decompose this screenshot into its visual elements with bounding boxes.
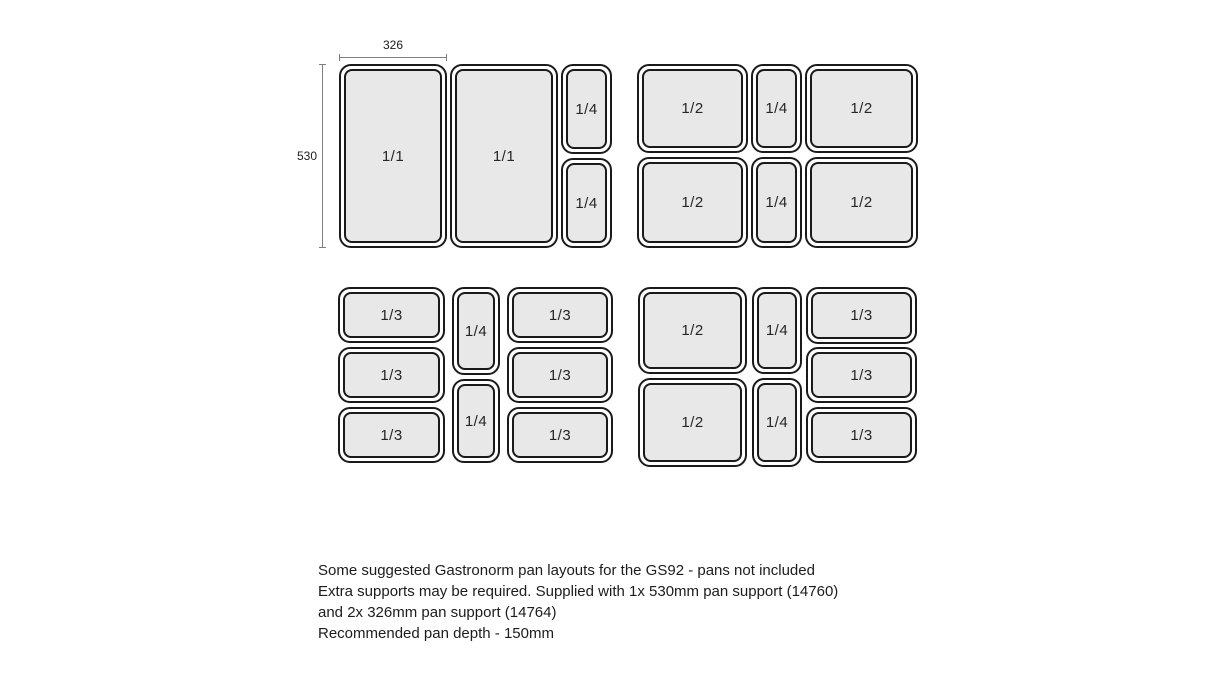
pan-body: 1/4 xyxy=(566,69,607,149)
gastronorm-pan-1-3: 1/3 xyxy=(806,287,917,344)
gastronorm-pan-1-3: 1/3 xyxy=(806,347,917,403)
pan-size-label: 1/3 xyxy=(549,427,571,444)
pan-body: 1/2 xyxy=(642,162,743,243)
gastronorm-pan-1-3: 1/3 xyxy=(507,347,613,403)
pan-size-label: 1/1 xyxy=(382,148,404,165)
pan-body: 1/3 xyxy=(811,292,912,339)
caption: Some suggested Gastronorm pan layouts fo… xyxy=(318,560,838,644)
pan-size-label: 1/3 xyxy=(850,307,872,324)
pan-size-label: 1/3 xyxy=(850,427,872,444)
gastronorm-pan-1-4: 1/4 xyxy=(751,157,802,248)
pan-body: 1/2 xyxy=(643,292,742,369)
caption-line-4: Recommended pan depth - 150mm xyxy=(318,623,838,644)
dimension-width-label: 326 xyxy=(339,38,447,52)
caption-line-3: and 2x 326mm pan support (14764) xyxy=(318,602,838,623)
pan-size-label: 1/2 xyxy=(850,100,872,117)
pan-size-label: 1/4 xyxy=(766,414,788,431)
gastronorm-pan-1-4: 1/4 xyxy=(751,64,802,153)
pan-body: 1/4 xyxy=(757,292,797,369)
pan-size-label: 1/4 xyxy=(575,195,597,212)
pan-body: 1/4 xyxy=(457,384,495,458)
pan-body: 1/3 xyxy=(512,292,608,338)
pan-body: 1/3 xyxy=(512,352,608,398)
gastronorm-pan-1-4: 1/4 xyxy=(452,287,500,375)
pan-size-label: 1/4 xyxy=(575,101,597,118)
pan-size-label: 1/4 xyxy=(765,100,787,117)
gastronorm-pan-1-1: 1/1 xyxy=(339,64,447,248)
pan-size-label: 1/3 xyxy=(549,307,571,324)
pan-size-label: 1/3 xyxy=(380,307,402,324)
pan-body: 1/4 xyxy=(756,69,797,148)
gastronorm-pan-1-3: 1/3 xyxy=(507,287,613,343)
pan-body: 1/2 xyxy=(643,383,742,462)
gastronorm-pan-1-3: 1/3 xyxy=(806,407,917,463)
pan-size-label: 1/3 xyxy=(380,367,402,384)
pan-body: 1/3 xyxy=(811,412,912,458)
pan-size-label: 1/4 xyxy=(766,322,788,339)
gastronorm-pan-1-4: 1/4 xyxy=(752,287,802,374)
pan-size-label: 1/3 xyxy=(850,367,872,384)
gastronorm-pan-1-1: 1/1 xyxy=(450,64,558,248)
pan-size-label: 1/2 xyxy=(850,194,872,211)
page: 326 530 1/11/11/41/41/21/41/21/21/41/21/… xyxy=(0,0,1214,683)
gastronorm-pan-1-3: 1/3 xyxy=(338,347,445,403)
pan-body: 1/2 xyxy=(810,69,913,148)
pan-size-label: 1/4 xyxy=(465,323,487,340)
gastronorm-pan-1-2: 1/2 xyxy=(638,378,747,467)
dimension-width-line xyxy=(339,57,447,58)
pan-size-label: 1/1 xyxy=(493,148,515,165)
gastronorm-pan-1-3: 1/3 xyxy=(507,407,613,463)
pan-body: 1/3 xyxy=(343,352,440,398)
gastronorm-pan-1-2: 1/2 xyxy=(805,157,918,248)
caption-line-1: Some suggested Gastronorm pan layouts fo… xyxy=(318,560,838,581)
pan-size-label: 1/2 xyxy=(681,414,703,431)
pan-body: 1/4 xyxy=(566,163,607,243)
gastronorm-pan-1-4: 1/4 xyxy=(752,378,802,467)
pan-size-label: 1/3 xyxy=(380,427,402,444)
pan-body: 1/4 xyxy=(757,383,797,462)
dimension-height-line xyxy=(322,64,323,248)
gastronorm-pan-1-3: 1/3 xyxy=(338,287,445,343)
pan-body: 1/4 xyxy=(457,292,495,370)
gastronorm-pan-1-3: 1/3 xyxy=(338,407,445,463)
gastronorm-pan-1-2: 1/2 xyxy=(805,64,918,153)
gastronorm-pan-1-4: 1/4 xyxy=(452,379,500,463)
pan-body: 1/3 xyxy=(343,412,440,458)
pan-size-label: 1/4 xyxy=(465,413,487,430)
gastronorm-pan-1-2: 1/2 xyxy=(637,64,748,153)
caption-line-2: Extra supports may be required. Supplied… xyxy=(318,581,838,602)
gastronorm-pan-1-4: 1/4 xyxy=(561,64,612,154)
pan-body: 1/2 xyxy=(642,69,743,148)
pan-body: 1/3 xyxy=(343,292,440,338)
pan-size-label: 1/4 xyxy=(765,194,787,211)
pan-size-label: 1/3 xyxy=(549,367,571,384)
gastronorm-pan-1-2: 1/2 xyxy=(637,157,748,248)
pan-size-label: 1/2 xyxy=(681,322,703,339)
gastronorm-pan-1-4: 1/4 xyxy=(561,158,612,248)
gastronorm-pan-1-2: 1/2 xyxy=(638,287,747,374)
pan-body: 1/3 xyxy=(811,352,912,398)
dimension-height-label: 530 xyxy=(288,149,317,163)
pan-body: 1/1 xyxy=(344,69,442,243)
pan-size-label: 1/2 xyxy=(681,100,703,117)
pan-body: 1/3 xyxy=(512,412,608,458)
pan-body: 1/4 xyxy=(756,162,797,243)
pan-size-label: 1/2 xyxy=(681,194,703,211)
pan-body: 1/1 xyxy=(455,69,553,243)
pan-body: 1/2 xyxy=(810,162,913,243)
